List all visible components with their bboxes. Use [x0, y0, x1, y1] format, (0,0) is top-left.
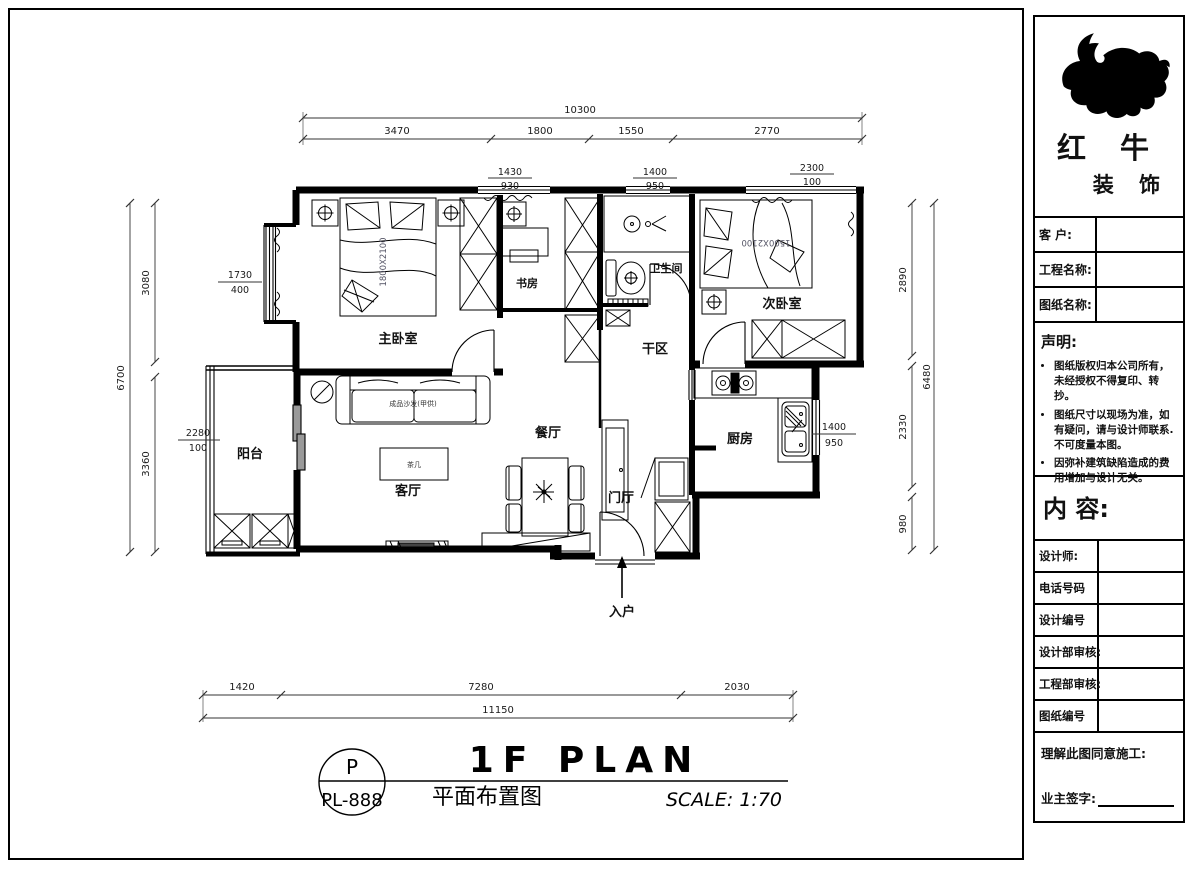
second-bed: 1500X2100	[700, 200, 812, 288]
brand-logo	[1046, 23, 1172, 123]
label-dry-area: 干区	[642, 342, 668, 357]
label-master-bedroom: 主卧室	[378, 331, 417, 347]
drawing-title: P PL-888 1F PLAN 平面布置图 SCALE: 1:70	[319, 740, 788, 815]
info-phone-value	[1099, 573, 1183, 603]
master-bed-size: 1800X2100	[379, 237, 389, 286]
title-circle-letter: P	[346, 755, 358, 779]
bath-toilet	[606, 260, 645, 296]
dim-top-s3: 1550	[618, 126, 643, 137]
master-wardrobe	[460, 198, 497, 310]
signature-box: 理解此图同意施工: 业主签字:	[1033, 731, 1185, 823]
tea-table: 茶几	[380, 448, 448, 480]
title-heading-cn: 平面布置图	[432, 785, 542, 810]
dim-top-s1: 3470	[384, 126, 409, 137]
sofa-label: 成品沙发(甲供)	[389, 399, 437, 408]
label-dining: 餐厅	[534, 425, 561, 441]
field-drawing-name-value	[1097, 288, 1183, 321]
dim-right-s1: 2890	[898, 267, 909, 292]
label-second-bedroom: 次卧室	[762, 296, 801, 312]
field-project-name-label: 工程名称:	[1035, 253, 1097, 286]
dining-table	[506, 458, 584, 536]
field-drawing-name-label: 图纸名称:	[1035, 288, 1097, 321]
dim-left-s2: 3360	[141, 451, 152, 476]
bath-vanity	[604, 196, 690, 252]
foyer-shaft	[655, 502, 690, 552]
bath-shaft	[606, 310, 630, 326]
second-wardrobe	[752, 320, 845, 358]
dim-bottom-s3: 2030	[724, 682, 749, 693]
dim-top-total: 10300	[564, 105, 596, 116]
dim-left-total: 6700	[116, 365, 127, 390]
statement-title: 声明:	[1041, 331, 1179, 352]
signature-line1: 理解此图同意施工:	[1041, 743, 1179, 762]
statement-item: 图纸尺寸以现场为准，如有疑问，请与设计师联系. 不可度量本图。	[1054, 408, 1179, 453]
field-customer-value	[1097, 218, 1183, 251]
study-desk	[502, 202, 548, 262]
dim-balcony-a: 2280	[186, 428, 210, 439]
info-design-number: 设计编号	[1033, 603, 1185, 637]
label-kitchen: 厨房	[727, 431, 753, 447]
info-engineering-review-label: 工程部审核:	[1035, 669, 1099, 699]
label-foyer: 门厅	[608, 490, 634, 506]
field-drawing-name: 图纸名称:	[1033, 286, 1185, 323]
label-balcony: 阳台	[237, 446, 263, 462]
dim-right-total: 6480	[922, 364, 933, 389]
info-design-number-label: 设计编号	[1035, 605, 1099, 635]
info-drawing-number-value	[1099, 701, 1183, 731]
field-project-name-value	[1097, 253, 1183, 286]
bedroom2-curtain-right	[849, 212, 854, 236]
floor-plan: 1800X2100	[0, 0, 1030, 870]
dimension-texts: 10300 3470 1800 1550 2770 1430 930 1400 …	[116, 105, 933, 716]
dim-kitchen-window-b: 950	[825, 438, 843, 449]
master-bed: 1800X2100	[340, 198, 436, 316]
kitchen-counter-stove	[694, 368, 812, 398]
info-design-review-value	[1099, 637, 1183, 667]
title-scale: SCALE: 1:70	[666, 789, 782, 811]
washing-machines	[214, 514, 300, 548]
field-customer: 客 户:	[1033, 216, 1185, 253]
info-engineering-review-value	[1099, 669, 1183, 699]
brand-name-bottom: 装 饰	[1093, 169, 1169, 199]
dim-bottom-total: 11150	[482, 705, 514, 716]
info-design-review-label: 设计部审核:	[1035, 637, 1099, 667]
entry-marker: 入户	[609, 556, 635, 620]
title-heading-en: 1F PLAN	[469, 740, 702, 781]
study-wardrobe	[565, 198, 600, 362]
master-nightstands	[312, 200, 464, 226]
info-design-review: 设计部审核:	[1033, 635, 1185, 669]
info-drawing-number: 图纸编号	[1033, 699, 1185, 733]
dim-kitchen-window-a: 1400	[822, 422, 846, 433]
window-kitchen	[813, 400, 820, 455]
statement-box: 声明: 图纸版权归本公司所有，未经授权不得复印、转抄。 图纸尺寸以现场为准，如有…	[1033, 321, 1185, 477]
title-block: 红 牛 装 饰 客 户: 工程名称: 图纸名称: 声明: 图纸版权归本公司所有，…	[1022, 8, 1192, 860]
info-phone-label: 电话号码	[1035, 573, 1099, 603]
second-bed-size: 1500X2100	[741, 237, 790, 247]
info-designer-label: 设计师:	[1035, 541, 1099, 571]
sofa: 成品沙发(甲供)	[336, 376, 490, 424]
brand-box: 红 牛 装 饰	[1033, 15, 1185, 218]
statement-list: 图纸版权归本公司所有，未经授权不得复印、转抄。 图纸尺寸以现场为准，如有疑问，请…	[1054, 359, 1179, 486]
info-phone: 电话号码	[1033, 571, 1185, 605]
field-customer-label: 客 户:	[1035, 218, 1097, 251]
dim-bed2-window-b: 100	[803, 177, 821, 188]
kitchen-sink	[778, 398, 812, 462]
signature-line2: 业主签字:	[1041, 788, 1096, 807]
dim-right-s2: 2330	[898, 414, 909, 439]
balcony-slider-panel2	[297, 434, 305, 470]
dim-study-window-b: 930	[501, 181, 519, 192]
statement-item: 图纸版权归本公司所有，未经授权不得复印、转抄。	[1054, 359, 1179, 404]
label-entry: 入户	[609, 604, 635, 620]
dim-bath-window-b: 950	[646, 181, 664, 192]
brand-name-top: 红 牛	[1057, 125, 1161, 167]
dim-right-s3: 980	[898, 514, 909, 533]
dim-bed2-window-a: 2300	[800, 163, 824, 174]
dim-bath-window-a: 1400	[643, 167, 667, 178]
dim-left-s1: 3080	[141, 270, 152, 295]
info-drawing-number-label: 图纸编号	[1035, 701, 1099, 731]
window-balcony	[206, 366, 214, 554]
second-nightstand	[702, 290, 726, 314]
door-master	[452, 330, 494, 372]
dim-bottom-s1: 1420	[229, 682, 254, 693]
dim-top-s4: 2770	[754, 126, 779, 137]
label-living: 客厅	[395, 483, 421, 499]
tea-table-label: 茶几	[407, 460, 421, 469]
label-bathroom: 卫生间	[650, 261, 683, 275]
info-engineering-review: 工程部审核:	[1033, 667, 1185, 701]
door-entry	[600, 512, 644, 556]
foyer-cabinet	[641, 458, 688, 500]
info-designer-value	[1099, 541, 1183, 571]
dim-bay-b: 400	[231, 285, 249, 296]
dim-top-s2: 1800	[527, 126, 552, 137]
signature-underline	[1098, 793, 1174, 807]
window-bay	[264, 225, 276, 322]
label-study: 书房	[516, 276, 538, 290]
info-design-number-value	[1099, 605, 1183, 635]
dim-bay-a: 1730	[228, 270, 252, 281]
field-project-name: 工程名称:	[1033, 251, 1185, 288]
dim-study-window-a: 1430	[498, 167, 522, 178]
floor-lamp	[311, 381, 333, 403]
title-circle-code: PL-888	[321, 790, 382, 811]
dim-balcony-b: 100	[189, 443, 207, 454]
dim-bottom-s2: 7280	[468, 682, 493, 693]
info-designer: 设计师:	[1033, 539, 1185, 573]
table-centerpiece	[533, 480, 554, 503]
door-bedroom2	[703, 322, 745, 364]
